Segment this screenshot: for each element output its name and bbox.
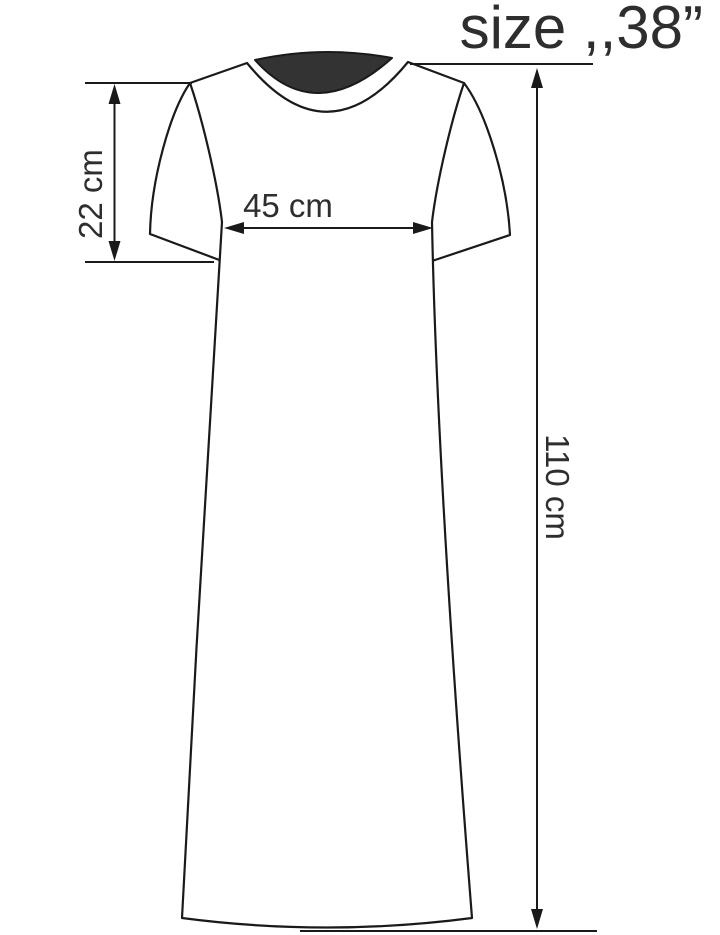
dress-size-drawing: 22 cm 45 cm 110 cm size ,,38” (0, 0, 720, 935)
total-length-label: 110 cm (539, 434, 576, 540)
dress-outline-group (150, 52, 510, 928)
size-diagram: 22 cm 45 cm 110 cm size ,,38” (0, 0, 720, 935)
back-neckline-crescent (255, 52, 392, 93)
arrowhead-up-icon (109, 84, 121, 104)
page-title: size ,,38” (460, 0, 703, 61)
chest-width-label: 45 cm (243, 187, 333, 224)
arrowhead-down-icon (531, 909, 543, 929)
arrowhead-down-icon (109, 241, 121, 261)
sleeve-length-label: 22 cm (72, 149, 109, 239)
arrowhead-up-icon (531, 68, 543, 88)
